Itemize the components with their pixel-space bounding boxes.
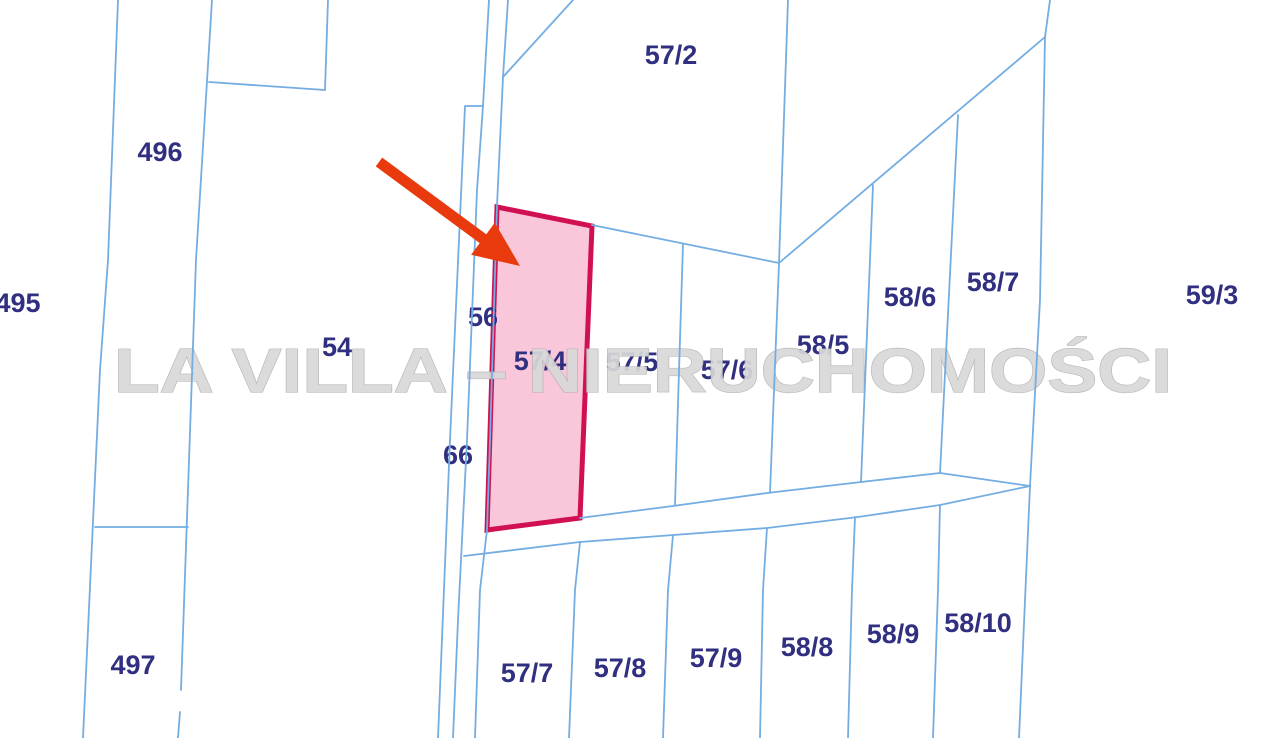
parcel-label-495: 495 — [0, 288, 41, 318]
boundary-line-parcel-58-8-58-9-divider — [848, 517, 855, 738]
parcel-label-57-8: 57/8 — [594, 653, 647, 683]
parcel-label-66: 66 — [443, 440, 473, 470]
boundary-line-parcel-57-9-58-8-divider — [760, 528, 767, 738]
parcel-label-58-9: 58/9 — [867, 619, 920, 649]
parcel-label-59-3: 59/3 — [1186, 280, 1239, 310]
pointer-arrow-shaft — [379, 162, 486, 241]
boundary-line-parcel-57-7-57-8-divider — [569, 542, 580, 738]
boundary-line-parcel-57-2-east-line — [770, 0, 788, 493]
cadastral-map: 49549649754566657/257/457/557/658/558/65… — [0, 0, 1280, 738]
boundary-line-parcel-57-8-57-9-divider — [663, 535, 673, 738]
cadastral-map-canvas: 49549649754566657/257/457/557/658/558/65… — [0, 0, 1280, 738]
boundary-line-parcel-57-2-south-line — [592, 225, 779, 263]
parcel-label-58-10: 58/10 — [944, 608, 1012, 638]
boundary-line-parcel-57-2-west-diagonal — [503, 0, 573, 77]
parcel-label-497: 497 — [110, 650, 155, 680]
boundary-line-parcel-58-5-58-6-divider — [861, 185, 873, 482]
parcel-label-57-9: 57/9 — [690, 643, 743, 673]
parcel-label-496: 496 — [137, 137, 182, 167]
parcel-label-58-6: 58/6 — [884, 282, 937, 312]
boundary-line-west-field-line — [83, 0, 118, 738]
boundary-line-parcel-58-6-58-7-divider — [940, 115, 958, 473]
parcel-label-58-8: 58/8 — [781, 632, 834, 662]
boundary-line-parcel-58-north-diagonal — [779, 37, 1045, 263]
parcel-label-57-2: 57/2 — [645, 40, 698, 70]
parcel-label-57-7: 57/7 — [501, 658, 554, 688]
boundary-line-road-north-line — [580, 473, 1030, 518]
parcel-label-58-7: 58/7 — [967, 267, 1020, 297]
boundary-line-notch-vertical — [325, 0, 328, 90]
watermark: LA VILLA – NIERUCHOMOŚCI — [114, 337, 1172, 406]
boundary-line-parcel-496-west-line-lower — [178, 712, 180, 738]
boundary-line-parcel-58-9-58-10-divider — [933, 505, 940, 738]
boundary-line-notch-horizontal — [209, 82, 325, 90]
